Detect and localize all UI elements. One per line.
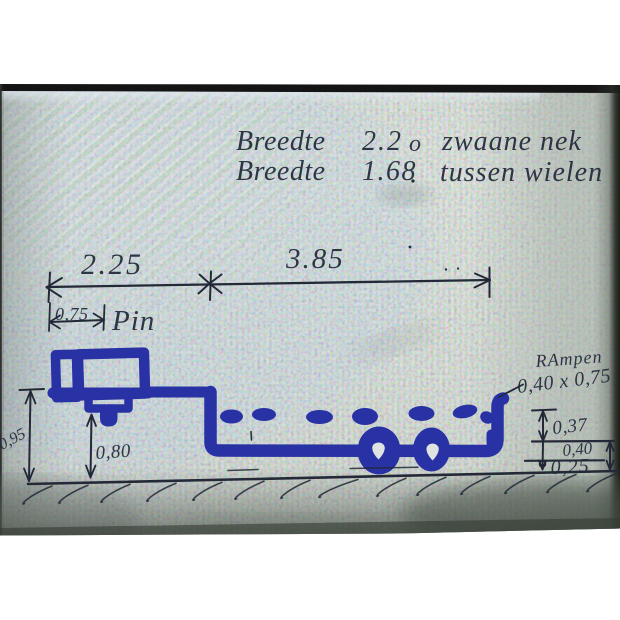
svg-text:3.85: 3.85 xyxy=(285,243,345,275)
svg-text:Breedte: Breedte xyxy=(236,126,326,157)
svg-text:Pin: Pin xyxy=(111,305,155,337)
svg-text:0,75: 0,75 xyxy=(55,304,89,324)
svg-text:zwaane nek: zwaane nek xyxy=(441,126,582,157)
svg-text:0,80: 0,80 xyxy=(95,441,132,464)
svg-text:o: o xyxy=(409,131,421,157)
svg-text:0,37: 0,37 xyxy=(551,414,589,439)
svg-text:0,25: 0,25 xyxy=(550,455,590,479)
svg-text:tussen wielen: tussen wielen xyxy=(440,157,603,188)
svg-text:2.2: 2.2 xyxy=(362,126,403,157)
svg-text:2.25: 2.25 xyxy=(81,248,144,281)
svg-text:1.68: 1.68 xyxy=(362,156,417,187)
svg-text:Breedte: Breedte xyxy=(236,156,326,187)
